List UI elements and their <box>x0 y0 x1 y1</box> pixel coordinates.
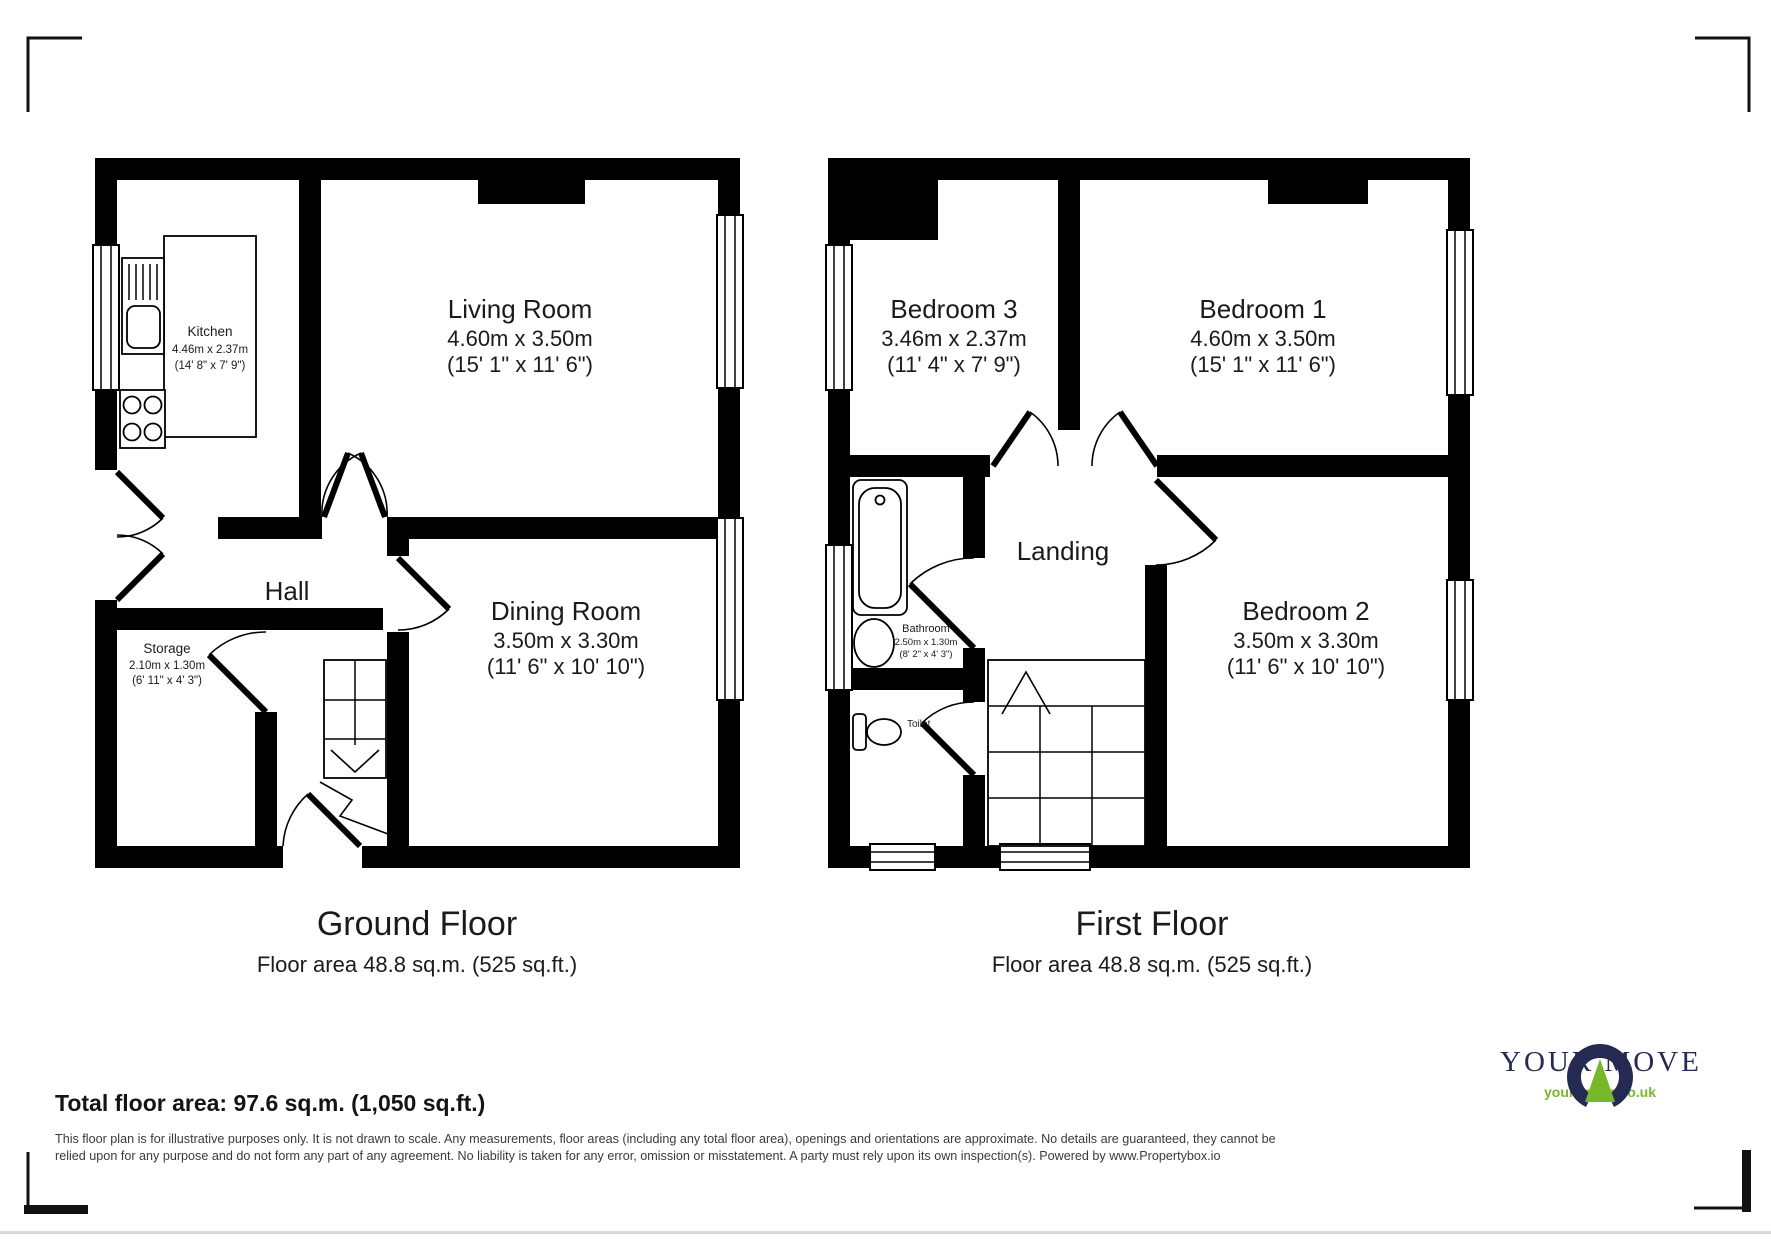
window-icon <box>717 215 743 388</box>
first-interior-walls <box>828 180 1470 846</box>
wall <box>95 600 117 868</box>
stairs-icon <box>988 660 1145 846</box>
door-toilet <box>922 702 974 775</box>
ground-floor-title: Ground Floor <box>317 905 517 943</box>
room-label-bathroom: Bathroom <box>902 623 950 635</box>
wall <box>1090 846 1470 868</box>
door-dining <box>398 558 449 630</box>
basin-icon <box>854 619 894 667</box>
wall-toilet-right-lower <box>963 775 985 846</box>
crop-mark-bottom-left-bar <box>24 1205 88 1214</box>
ground-outer-walls <box>95 158 740 868</box>
room-dim-living-metric: 4.60m x 3.50m <box>447 326 593 351</box>
wall-bathroom-toilet <box>850 668 985 690</box>
crop-mark-top-right <box>1695 38 1749 112</box>
wall <box>718 700 740 868</box>
door-bedroom3 <box>993 412 1058 466</box>
room-label-bedroom1: Bedroom 1 <box>1199 294 1326 324</box>
first-floor-title: First Floor <box>1076 905 1229 943</box>
room-label-storage: Storage <box>143 641 190 656</box>
room-label-landing: Landing <box>1017 536 1110 566</box>
wall <box>95 158 740 180</box>
floorplan-page: Kitchen 4.46m x 2.37m (14' 8" x 7' 9") L… <box>0 0 1771 1239</box>
room-dim-bedroom3-metric: 3.46m x 2.37m <box>881 326 1027 351</box>
wall <box>1448 700 1470 868</box>
wall <box>718 388 740 518</box>
door-bedroom1 <box>1092 412 1157 466</box>
room-dim-kitchen-metric: 4.46m x 2.37m <box>172 344 248 356</box>
wall-bathroom-right-upper <box>963 477 985 558</box>
bathroom-fixtures <box>853 480 907 750</box>
wall <box>935 846 1000 868</box>
bath-icon <box>853 480 907 615</box>
sink-icon <box>122 258 164 354</box>
wall <box>828 690 850 868</box>
window-icon <box>93 245 119 390</box>
room-dim-bedroom2-imperial: (11' 6" x 10' 10") <box>1227 654 1385 679</box>
wall <box>1448 395 1470 580</box>
room-label-bedroom2: Bedroom 2 <box>1242 596 1369 626</box>
door-bedroom2 <box>1156 480 1216 565</box>
window-icon <box>1000 844 1090 870</box>
wall-bed3-bed1 <box>1058 180 1080 430</box>
wall <box>1448 158 1470 230</box>
disclaimer-text: This floor plan is for illustrative purp… <box>55 1131 1283 1164</box>
chimney-breast <box>478 180 585 204</box>
window-icon <box>1447 580 1473 700</box>
room-label-toilet: Toilet <box>907 719 931 730</box>
first-room-labels: Bedroom 3 3.46m x 2.37m (11' 4" x 7' 9")… <box>881 294 1385 730</box>
room-dim-bathroom-imperial: (8' 2" x 4' 3") <box>899 649 952 660</box>
total-floor-area: Total floor area: 97.6 sq.m. (1,050 sq.f… <box>55 1090 485 1117</box>
room-dim-bedroom3-imperial: (11' 4" x 7' 9") <box>887 352 1021 377</box>
logo-triangle <box>1585 1059 1615 1102</box>
wall-hall-dining <box>387 632 409 846</box>
room-label-hall: Hall <box>265 576 310 606</box>
wall <box>828 158 1470 180</box>
window-icon <box>1447 230 1473 395</box>
room-dim-bathroom-metric: 2.50m x 1.30m <box>895 637 958 648</box>
logo-mark-icon <box>1500 1044 1700 1110</box>
wall-storage-top <box>95 608 383 630</box>
room-dim-bedroom1-metric: 4.60m x 3.50m <box>1190 326 1336 351</box>
kitchen-fixtures <box>120 236 256 448</box>
ground-floor-plan: Kitchen 4.46m x 2.37m (14' 8" x 7' 9") L… <box>93 158 743 977</box>
door-living-double <box>322 453 387 517</box>
window-icon <box>826 545 852 690</box>
wall-living-dining <box>387 517 718 539</box>
room-dim-kitchen-imperial: (14' 8" x 7' 9") <box>175 360 246 372</box>
wall-bed2-left <box>1145 565 1167 846</box>
wall-toilet-right-upper <box>963 690 985 702</box>
room-label-dining-room: Dining Room <box>491 596 641 626</box>
room-dim-storage-imperial: (6' 11" x 4' 3") <box>132 675 202 687</box>
room-dim-living-imperial: (15' 1" x 11' 6") <box>447 352 593 377</box>
wall-corner-block <box>850 180 938 240</box>
wall-kitchen-living <box>299 180 321 517</box>
room-dim-storage-metric: 2.10m x 1.30m <box>129 660 205 672</box>
wall-stub <box>387 539 409 556</box>
crop-mark-bottom-right-bar <box>1742 1150 1751 1212</box>
window-icon <box>826 245 852 390</box>
wall <box>828 158 850 245</box>
ground-interior-walls <box>95 180 718 846</box>
room-label-bedroom3: Bedroom 3 <box>890 294 1017 324</box>
chimney-breast <box>1268 180 1368 204</box>
first-floor-area: Floor area 48.8 sq.m. (525 sq.ft.) <box>992 952 1312 977</box>
wall <box>718 158 740 215</box>
room-dim-bedroom1-imperial: (15' 1" x 11' 6") <box>1190 352 1336 377</box>
bottom-edge-line <box>0 1231 1771 1234</box>
room-label-living-room: Living Room <box>448 294 593 324</box>
wall-hall-living-left <box>218 517 322 539</box>
wall-landing-right <box>1157 455 1470 477</box>
your-move-logo: YOUR MOVE your-move.co.uk <box>1500 1044 1700 1100</box>
room-label-kitchen: Kitchen <box>187 324 232 339</box>
wall <box>95 158 117 245</box>
door-side-entrance <box>117 472 163 600</box>
window-icon <box>870 844 935 870</box>
wall <box>95 846 283 868</box>
first-floor-plan: Bedroom 3 3.46m x 2.37m (11' 4" x 7' 9")… <box>826 158 1473 977</box>
hob-icon <box>120 390 165 448</box>
wall-landing-left <box>828 455 990 477</box>
stairs-icon <box>320 660 388 834</box>
window-icon <box>717 518 743 700</box>
crop-mark-top-left <box>28 38 82 112</box>
ground-floor-area: Floor area 48.8 sq.m. (525 sq.ft.) <box>257 952 577 977</box>
wall <box>95 390 117 470</box>
room-dim-bedroom2-metric: 3.50m x 3.30m <box>1233 628 1379 653</box>
wall <box>362 846 740 868</box>
room-dim-dining-imperial: (11' 6" x 10' 10") <box>487 654 645 679</box>
toilet-icon <box>853 714 901 750</box>
room-dim-dining-metric: 3.50m x 3.30m <box>493 628 639 653</box>
wall-storage-right <box>255 712 277 846</box>
door-storage <box>209 632 266 712</box>
